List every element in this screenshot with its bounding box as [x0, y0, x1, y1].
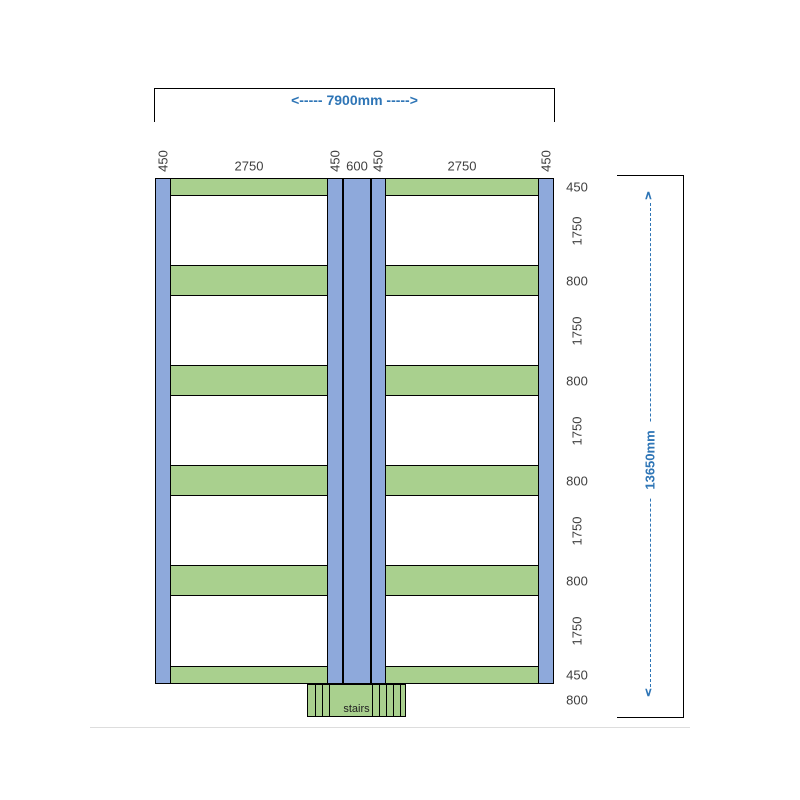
column-width-label: 450 — [371, 150, 386, 172]
row-height-label: 1750 — [570, 217, 585, 246]
support-column — [538, 178, 554, 684]
row-height-label: 1750 — [570, 417, 585, 446]
deck-bar — [384, 565, 540, 596]
support-column-center — [343, 178, 371, 684]
row-height-label: 1750 — [570, 517, 585, 546]
deck-bar — [384, 365, 540, 396]
column-width-label: 2750 — [448, 159, 477, 174]
column-width-label: 450 — [328, 150, 343, 172]
arrow-up-icon: ∧ — [644, 190, 653, 200]
stairs-label: stairs — [308, 703, 405, 715]
row-height-label: 800 — [566, 574, 588, 589]
row-height-label: 800 — [566, 474, 588, 489]
deck-bar — [384, 178, 540, 196]
arrow-down-icon: ∨ — [644, 687, 653, 697]
support-column — [155, 178, 171, 684]
column-width-label: 600 — [346, 159, 368, 174]
deck-bar — [169, 565, 329, 596]
deck-bar — [169, 365, 329, 396]
deck-bar — [169, 178, 329, 196]
deck-bar — [384, 265, 540, 296]
deck-bar — [169, 465, 329, 496]
row-height-label: 800 — [566, 274, 588, 289]
floor-plan-diagram: <----- 7900mm -----> 450 2750 450 600 45… — [0, 0, 800, 800]
column-width-label: 2750 — [235, 159, 264, 174]
stairs-block: stairs — [307, 684, 406, 717]
row-height-label: 800 — [566, 693, 588, 708]
support-column — [371, 178, 386, 684]
top-dimension-label: <----- 7900mm -----> — [154, 92, 555, 108]
column-width-label: 450 — [539, 150, 554, 172]
row-height-label: 450 — [566, 668, 588, 683]
row-height-label: 800 — [566, 374, 588, 389]
support-column — [327, 178, 343, 684]
column-width-label: 450 — [156, 150, 171, 172]
height-dimension-label: 13650mm — [642, 422, 659, 497]
row-height-label: 450 — [566, 180, 588, 195]
page-divider-line — [90, 727, 690, 728]
row-height-label: 1750 — [570, 617, 585, 646]
deck-bar — [169, 265, 329, 296]
row-height-label: 1750 — [570, 317, 585, 346]
deck-bar — [384, 465, 540, 496]
deck-bar — [384, 666, 540, 684]
structure-plan — [155, 178, 554, 684]
deck-bar — [169, 666, 329, 684]
